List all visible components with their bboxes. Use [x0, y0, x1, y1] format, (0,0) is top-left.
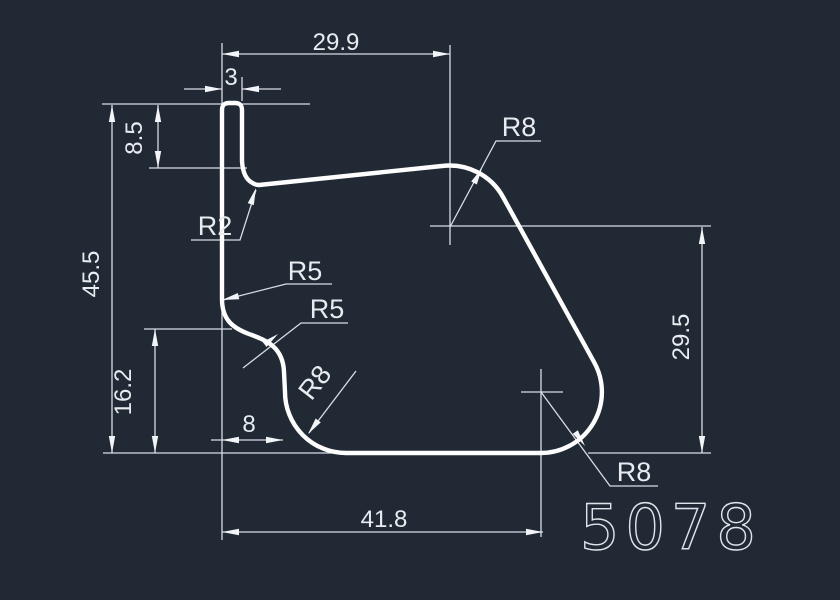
dim-tab-width: 3 [224, 64, 237, 91]
dim-step-height: 16.2 [110, 369, 137, 416]
radius-tab-fillet: R2 [198, 211, 233, 241]
radius-s-curve-upper: R5 [288, 256, 323, 286]
dimension-lines [112, 54, 702, 532]
dim-right-height: 29.5 [668, 314, 695, 361]
radius-bottom-right: R8 [617, 457, 652, 487]
radius-bottom-left: R8 [292, 360, 337, 406]
dim-overall-height: 45.5 [78, 251, 105, 298]
dim-tab-depth: 8.5 [121, 121, 148, 154]
dim-top-width: 29.9 [313, 29, 360, 56]
radius-s-curve-lower: R5 [310, 294, 345, 324]
arrowheads [109, 51, 705, 535]
leader-lines [191, 141, 658, 486]
part-number: 5078 [580, 491, 762, 564]
dim-step-offset: 8 [242, 411, 255, 438]
radius-top-right: R8 [502, 112, 537, 142]
dim-bottom-width: 41.8 [361, 506, 408, 533]
profile-outline [222, 103, 602, 453]
cad-drawing: 29.9 3 8.5 45.5 16.2 8 41.8 29.5 R8 R2 R… [0, 0, 840, 600]
cad-drawing-canvas[interactable]: 29.9 3 8.5 45.5 16.2 8 41.8 29.5 R8 R2 R… [0, 0, 840, 600]
leader-r5-lower [243, 323, 348, 368]
